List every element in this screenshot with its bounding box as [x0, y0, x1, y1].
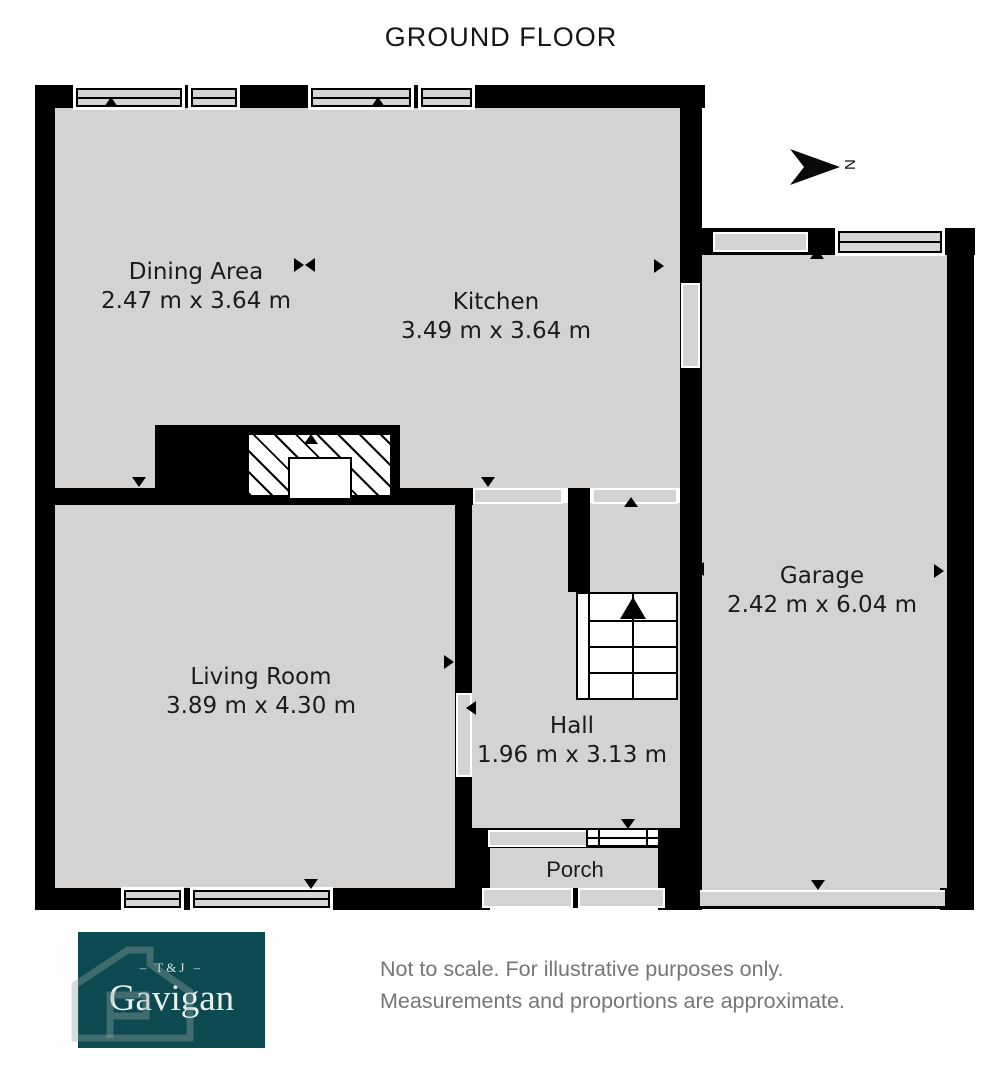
direction-marker-icon: [304, 434, 318, 444]
window-symbol: [191, 88, 237, 107]
room-label-garage: Garage 2.42 m x 6.04 m: [727, 562, 917, 620]
staircase-symbol: [576, 592, 678, 700]
compass-north-icon: [788, 147, 846, 187]
wall-garage-right: [947, 228, 974, 910]
room-label-hall: Hall 1.96 m x 3.13 m: [477, 712, 667, 770]
boundary-marker-icon: [305, 258, 315, 272]
direction-marker-icon: [42, 652, 52, 666]
porch-step: [578, 888, 665, 908]
porch-step: [482, 888, 573, 908]
direction-marker-icon: [621, 819, 635, 829]
doorway-hall-porch: [488, 830, 588, 847]
page-title: GROUND FLOOR: [385, 22, 618, 53]
disclaimer-line-2: Measurements and proportions are approxi…: [380, 985, 845, 1017]
room-dimensions: 1.96 m x 3.13 m: [477, 741, 667, 770]
room-dimensions: 2.47 m x 3.64 m: [101, 287, 291, 316]
room-name: Porch: [546, 855, 603, 884]
garage-side-door-opening: [713, 232, 808, 252]
room-dimensions: 2.42 m x 6.04 m: [727, 591, 917, 620]
direction-marker-icon: [466, 701, 476, 715]
direction-marker-icon: [934, 564, 944, 578]
compass-north-label: N: [841, 159, 858, 170]
disclaimer-line-1: Not to scale. For illustrative purposes …: [380, 953, 845, 985]
watermark-house-icon: [50, 940, 255, 1042]
stairs-up-arrow-icon: [620, 597, 646, 619]
direction-marker-icon: [810, 249, 824, 259]
direction-marker-icon: [132, 477, 146, 487]
floorplan-canvas: GROUND FLOOR N: [0, 0, 1002, 1080]
front-door-symbol: [586, 828, 660, 847]
direction-marker-icon: [624, 497, 638, 507]
direction-marker-icon: [42, 258, 52, 272]
window-symbol: [76, 88, 182, 107]
room-name: Kitchen: [401, 288, 591, 317]
window-symbol: [838, 231, 942, 253]
room-dimensions: 3.89 m x 4.30 m: [166, 692, 356, 721]
disclaimer-text: Not to scale. For illustrative purposes …: [380, 953, 845, 1017]
room-name: Living Room: [166, 663, 356, 692]
direction-marker-icon: [811, 880, 825, 890]
direction-marker-icon: [371, 97, 385, 107]
room-label-living: Living Room 3.89 m x 4.30 m: [166, 663, 356, 721]
direction-marker-icon: [444, 655, 454, 669]
wall-garage-corner: [940, 888, 974, 910]
room-dimensions: 3.49 m x 3.64 m: [401, 317, 591, 346]
direction-marker-icon: [481, 477, 495, 487]
direction-marker-icon: [654, 259, 664, 273]
direction-marker-icon: [304, 879, 318, 889]
wall-stair-stub: [568, 488, 590, 592]
doorway-kitchen-hall: [473, 488, 563, 504]
window-symbol: [311, 88, 411, 107]
window-symbol: [124, 890, 181, 908]
wall-house-garage-shared: [680, 85, 702, 910]
room-name: Hall: [477, 712, 667, 741]
fireplace-symbol: [288, 457, 352, 500]
direction-marker-icon: [104, 97, 118, 107]
room-label-porch: Porch: [546, 855, 603, 884]
room-label-kitchen: Kitchen 3.49 m x 3.64 m: [401, 288, 591, 346]
room-label-dining: Dining Area 2.47 m x 3.64 m: [101, 258, 291, 316]
window-symbol: [421, 88, 472, 107]
window-symbol: [193, 890, 330, 908]
room-name: Dining Area: [101, 258, 291, 287]
garage-door-symbol: [700, 890, 945, 909]
direction-marker-icon: [694, 562, 704, 576]
room-name: Garage: [727, 562, 917, 591]
window-kitchen-garage: [681, 283, 700, 368]
boundary-marker-icon: [294, 258, 304, 272]
